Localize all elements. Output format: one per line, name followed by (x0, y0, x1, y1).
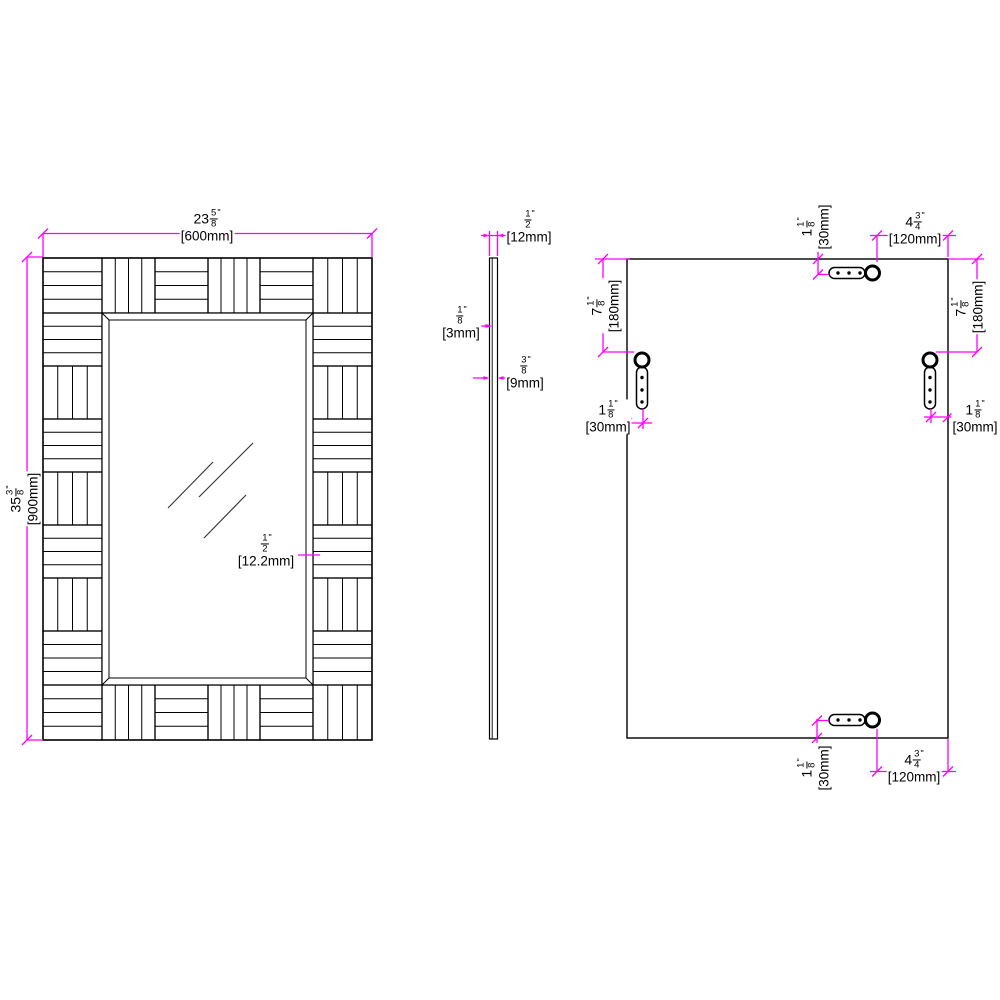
back-panel (627, 259, 948, 738)
drawing-linework (0, 0, 1000, 1000)
dim-back-top-offset: 118" [30mm] (796, 203, 831, 250)
dim-back-bottom-inset: 434" [120mm] (887, 749, 942, 784)
dim-back-right-inset: 118" [30mm] (951, 399, 998, 434)
back-view (627, 259, 948, 738)
dim-front-height: 3538" [900mm] (5, 472, 40, 527)
technical-drawing-mirror: 2358" [600mm] 3538" [900mm] 12" [12.2mm]… (0, 0, 1000, 1000)
dim-side-glass: 18" [3mm] (441, 305, 481, 340)
dim-back-top-inset: 434" [120mm] (888, 211, 943, 246)
dim-back-left-drop: 718" [180mm] (586, 279, 621, 334)
dim-side-depth: 12" [12mm] (505, 209, 552, 244)
side-view (490, 258, 498, 739)
dim-side-panel: 38" [9mm] (505, 355, 545, 390)
mirror-opening (102, 313, 313, 685)
dim-back-bottom-offset: 118" [30mm] (796, 744, 831, 791)
dim-front-thickness: 12" [12.2mm] (237, 533, 295, 568)
dim-back-right-drop: 718" [180mm] (950, 280, 985, 335)
side-profile (490, 258, 498, 739)
dim-back-left-inset: 118" [30mm] (584, 399, 631, 434)
front-view (43, 258, 372, 740)
dim-front-width: 2358" [600mm] (180, 208, 235, 243)
